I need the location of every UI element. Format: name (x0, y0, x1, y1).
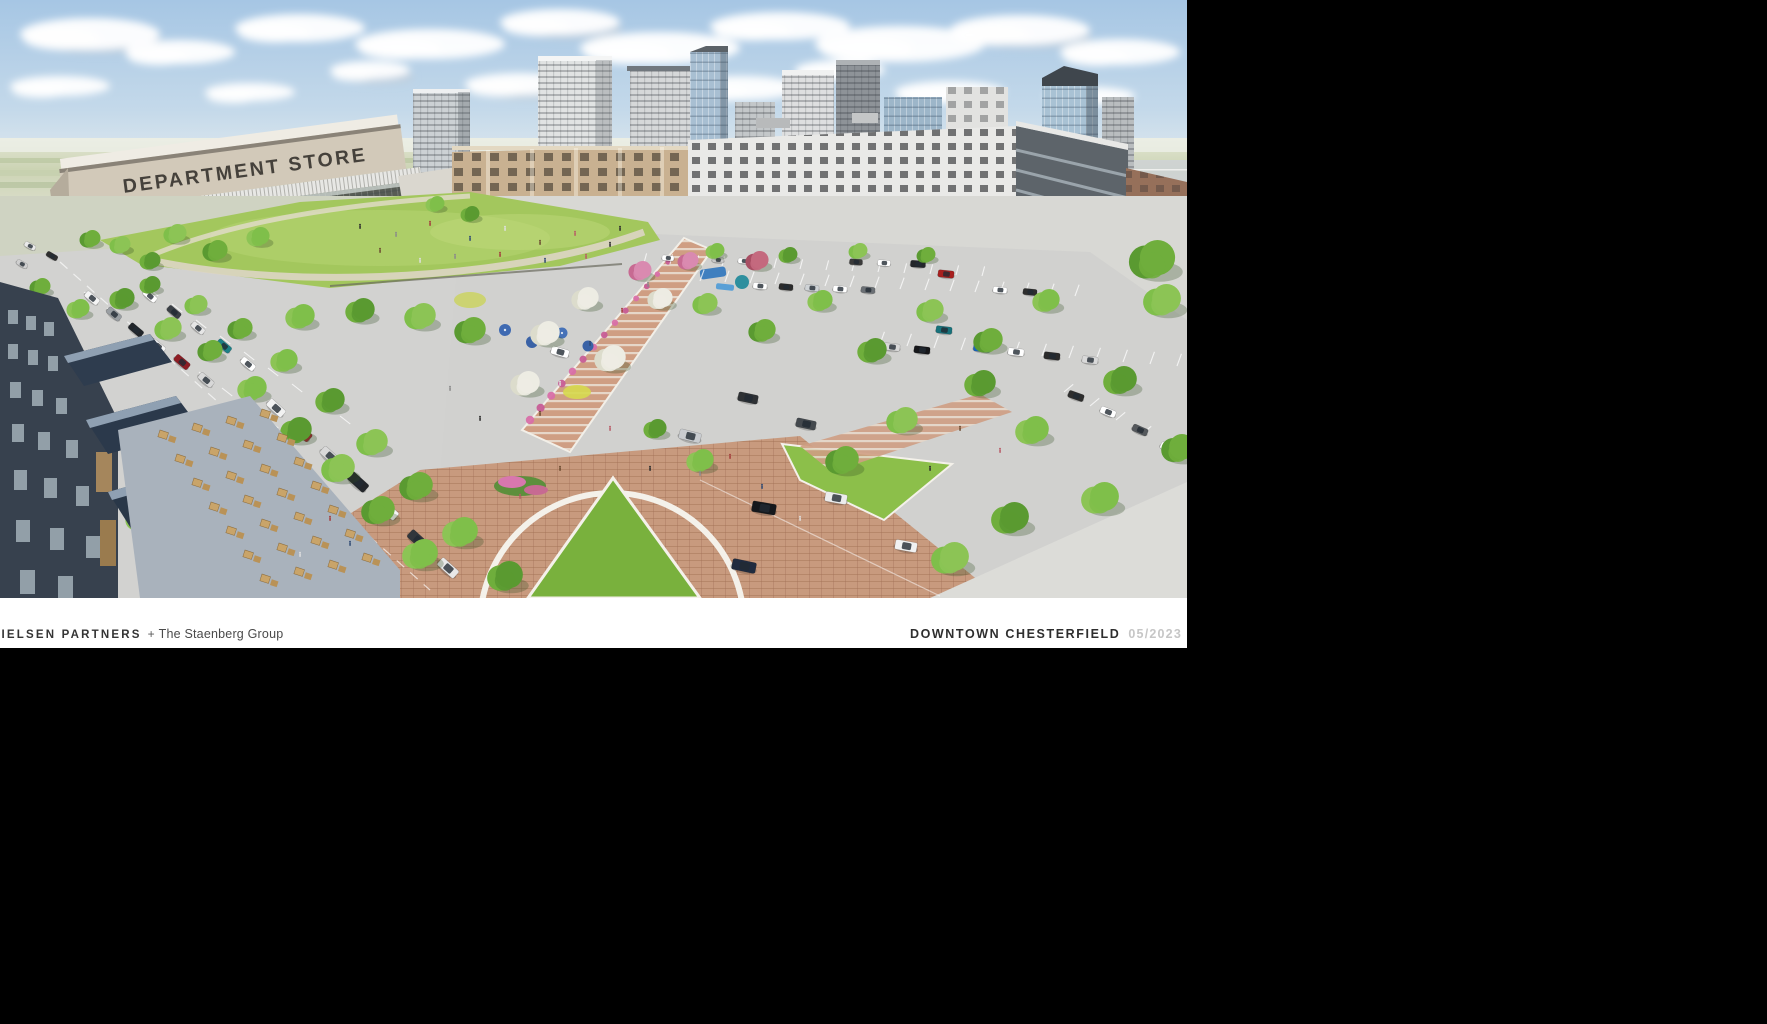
caption-bar: NIELSEN PARTNERS+The Staenberg Group DOW… (0, 598, 1187, 648)
rendering-image: DEPARTMENT STORE (0, 0, 1187, 598)
caption-project-title: DOWNTOWN CHESTERFIELD (910, 627, 1120, 641)
caption-plus: + (148, 627, 155, 641)
caption-date: 05/2023 (1128, 627, 1182, 641)
caption-firm-name: NIELSEN PARTNERS (0, 629, 142, 641)
letterboxed-page: DEPARTMENT STORE (0, 0, 1767, 1024)
rendering-artboard: DEPARTMENT STORE (0, 0, 1187, 648)
caption-left: NIELSEN PARTNERS+The Staenberg Group (0, 627, 283, 641)
caption-partner-name: The Staenberg Group (159, 627, 284, 641)
caption-right: DOWNTOWN CHESTERFIELD05/2023 (910, 627, 1182, 641)
